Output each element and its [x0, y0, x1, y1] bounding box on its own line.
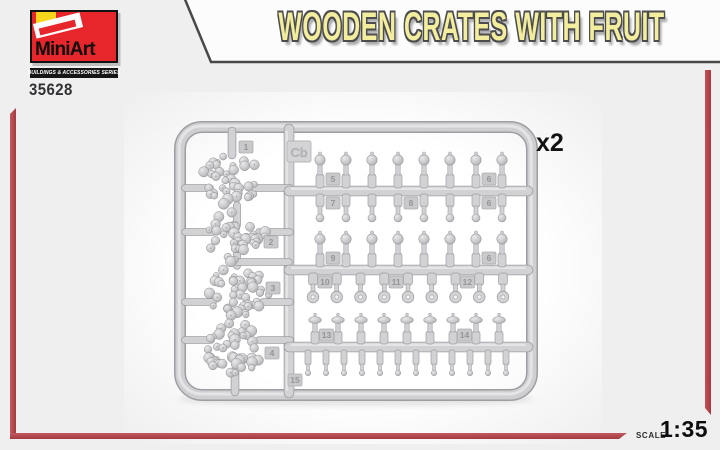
- svg-text:4: 4: [270, 348, 275, 358]
- sprue-parts: 56786961011121314: [289, 152, 528, 376]
- box-art-page: WOODEN CRATES WITH FRUIT MiniArt BUILDIN…: [0, 0, 720, 450]
- accent-line-left: [10, 108, 16, 439]
- svg-text:14: 14: [460, 330, 470, 340]
- page-title: WOODEN CRATES WITH FRUIT: [278, 5, 664, 50]
- svg-text:6: 6: [487, 198, 492, 208]
- svg-text:1: 1: [244, 142, 249, 152]
- svg-text:6: 6: [487, 174, 492, 184]
- scale-value: 1:35: [660, 416, 708, 443]
- svg-text:7: 7: [331, 198, 336, 208]
- svg-text:8: 8: [409, 198, 414, 208]
- brand-name: MiniArt: [35, 39, 95, 61]
- svg-text:9: 9: [331, 253, 336, 263]
- miniart-logo: MiniArt: [30, 10, 118, 63]
- sprue-illustration: 56786961011121314123415Cb: [150, 115, 580, 435]
- svg-text:2: 2: [269, 237, 274, 247]
- svg-text:13: 13: [322, 330, 332, 340]
- product-code: 35628: [29, 80, 73, 100]
- svg-text:Cb: Cb: [290, 145, 307, 160]
- series-label: BUILDINGS & ACCESSORIES SERIES: [30, 68, 118, 78]
- accent-line-right: [705, 70, 711, 415]
- svg-text:11: 11: [392, 277, 401, 287]
- page-title-wrap: WOODEN CRATES WITH FRUIT: [160, 5, 710, 50]
- sprue-code-plate: Cb: [287, 141, 311, 162]
- svg-text:10: 10: [320, 277, 330, 287]
- bottom-part-tag: 15: [288, 374, 302, 386]
- svg-text:12: 12: [463, 277, 473, 287]
- svg-text:3: 3: [271, 283, 276, 293]
- svg-text:5: 5: [331, 174, 336, 184]
- svg-text:15: 15: [290, 375, 300, 385]
- svg-text:6: 6: [487, 253, 492, 263]
- quantity-multiplier: x2: [536, 129, 564, 158]
